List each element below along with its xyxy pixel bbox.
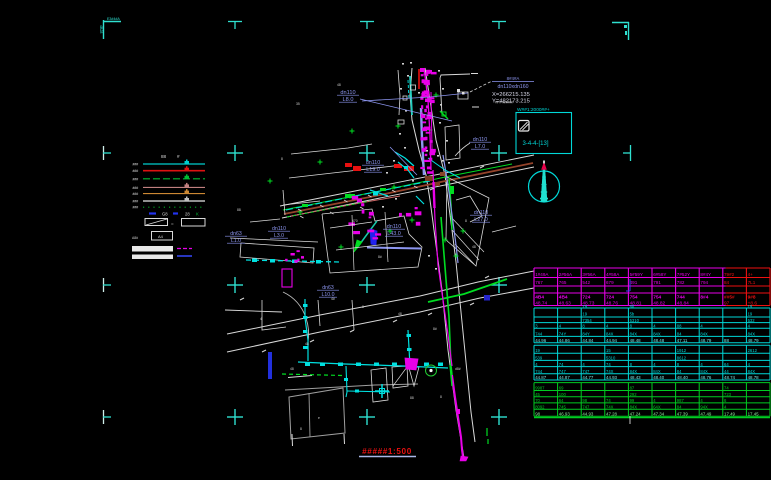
svg-text:8#4Y: 8#4Y (700, 272, 711, 277)
svg-text:7#52Y: 7#52Y (677, 272, 690, 277)
svg-text:723: 723 (724, 392, 732, 397)
svg-text:84X: 84X (606, 332, 614, 337)
svg-text:8: 8 (440, 395, 442, 399)
svg-text:48: 48 (290, 367, 294, 371)
svg-text:84X: 84X (653, 369, 661, 374)
svg-text:542: 542 (582, 280, 590, 285)
svg-text:48: 48 (398, 312, 402, 316)
svg-text:74: 74 (606, 362, 611, 367)
svg-text:dn110xdn160: dn110xdn160 (497, 84, 528, 90)
svg-text:744: 744 (535, 332, 543, 337)
svg-text:2#56A: 2#56A (559, 272, 573, 277)
svg-text:754: 754 (653, 295, 661, 301)
svg-text:48.48: 48.48 (653, 338, 665, 343)
svg-text:84X: 84X (748, 332, 756, 337)
svg-text:84X: 84X (630, 369, 638, 374)
svg-text:5b: 5b (630, 312, 635, 317)
svg-text:679: 679 (606, 280, 614, 285)
svg-text:48: 48 (472, 245, 476, 249)
svg-text:48.82: 48.82 (653, 301, 665, 307)
svg-text:84Y: 84Y (582, 332, 590, 337)
svg-text:1912: 1912 (677, 348, 687, 353)
svg-text:47.11: 47.11 (677, 338, 688, 343)
svg-text:747: 747 (559, 369, 567, 374)
svg-text:48.74: 48.74 (724, 375, 736, 380)
svg-text:A4: A4 (158, 234, 164, 239)
svg-text:###: ### (133, 192, 139, 196)
svg-text:K: K (196, 212, 199, 217)
svg-text:=: = (171, 221, 174, 226)
svg-text:84X: 84X (700, 332, 708, 337)
svg-text:84X: 84X (630, 332, 638, 337)
svg-text:94X: 94X (700, 404, 708, 409)
svg-text:84X: 84X (748, 369, 756, 374)
svg-text:987: 987 (677, 398, 685, 403)
svg-text:74: 74 (606, 398, 611, 403)
svg-text:767: 767 (535, 280, 543, 285)
svg-text:8: 8 (465, 219, 467, 223)
svg-text:8#: 8# (433, 327, 437, 331)
svg-text:###: ### (133, 169, 139, 173)
svg-text:754: 754 (630, 295, 638, 301)
svg-text:48.40: 48.40 (653, 375, 665, 380)
svg-text:70: 70 (535, 398, 540, 403)
svg-text:48.79: 48.79 (748, 338, 760, 343)
svg-text:X=266215.135: X=266215.135 (492, 92, 530, 98)
svg-text:17.45: 17.45 (748, 411, 760, 416)
svg-text:19: 19 (582, 312, 587, 317)
svg-text:44.93: 44.93 (606, 375, 618, 380)
svg-text:88: 88 (677, 324, 682, 329)
svg-text:84X: 84X (653, 332, 661, 337)
svg-text:28: 28 (185, 212, 190, 217)
svg-text:48.76: 48.76 (700, 375, 712, 380)
svg-text:8#4: 8#4 (700, 295, 708, 301)
svg-text:## # ######: ## # ###### (495, 101, 513, 105)
svg-text:19: 19 (535, 348, 540, 353)
svg-text:99: 99 (630, 398, 635, 403)
svg-text:35: 35 (296, 102, 300, 106)
svg-text:###: ### (133, 200, 139, 204)
svg-text:794: 794 (700, 280, 708, 285)
svg-text:64X: 64X (653, 404, 661, 409)
svg-text:3#56A: 3#56A (582, 272, 596, 277)
svg-text:74Y: 74Y (559, 332, 567, 337)
svg-text:###: ### (133, 163, 139, 167)
svg-text:48.79: 48.79 (700, 338, 712, 343)
svg-text:44: 44 (724, 369, 729, 374)
svg-text:1#49A: 1#49A (535, 272, 549, 277)
svg-text:8#: 8# (378, 255, 382, 259)
svg-text:6#58Y: 6#58Y (653, 272, 666, 277)
svg-text:98: 98 (582, 398, 587, 403)
svg-text:744: 744 (535, 369, 543, 374)
svg-text:744: 744 (677, 295, 685, 301)
svg-text:4+: 4+ (748, 272, 754, 277)
svg-text:7L1: 7L1 (748, 280, 756, 285)
svg-text:8#4#A: 8#4#A (507, 76, 520, 81)
svg-text:44.86: 44.86 (559, 338, 571, 343)
svg-text:791: 791 (653, 280, 661, 285)
svg-text:44.93: 44.93 (582, 411, 594, 416)
svg-text:747: 747 (582, 404, 590, 409)
svg-text:782: 782 (677, 280, 685, 285)
svg-text:44.94: 44.94 (606, 338, 618, 343)
svg-text:47.49: 47.49 (700, 411, 712, 416)
svg-text:98: 98 (535, 411, 540, 416)
svg-text:2612: 2612 (748, 348, 758, 353)
svg-text:###: ### (133, 206, 139, 210)
svg-text:74X: 74X (606, 404, 614, 409)
svg-text:4B28: 4B28 (99, 25, 103, 33)
svg-text:44.84: 44.84 (582, 338, 594, 343)
svg-text:e: e (318, 416, 320, 420)
svg-text:79#2: 79#2 (724, 272, 735, 277)
svg-text:19: 19 (748, 304, 753, 309)
svg-text:#####1:500: #####1:500 (362, 447, 412, 456)
svg-text:747: 747 (582, 369, 590, 374)
svg-text:74: 74 (559, 362, 564, 367)
svg-text:88: 88 (724, 338, 729, 343)
svg-text:9987: 9987 (535, 386, 545, 391)
svg-text:48.63: 48.63 (559, 301, 571, 307)
svg-text:46.93: 46.93 (559, 411, 571, 416)
svg-text:724: 724 (606, 295, 614, 301)
svg-text:19: 19 (748, 312, 753, 317)
svg-text:5310: 5310 (630, 318, 640, 323)
svg-text:84: 84 (724, 280, 730, 285)
svg-text:##5#: ##5# (724, 295, 735, 301)
svg-text:88: 88 (161, 154, 167, 159)
svg-text:84: 84 (677, 332, 682, 337)
svg-text:A8#: A8# (132, 236, 138, 240)
svg-text:532: 532 (748, 318, 756, 323)
svg-text:84X: 84X (630, 404, 638, 409)
svg-text:4#58A: 4#58A (606, 272, 620, 277)
svg-text:8092: 8092 (535, 404, 545, 409)
svg-text:74: 74 (724, 386, 729, 391)
svg-text:724: 724 (582, 295, 590, 301)
svg-text:###: ### (133, 186, 139, 190)
svg-text:E3#4#A: E3#4#A (107, 17, 120, 21)
svg-text:4B4: 4B4 (535, 295, 544, 301)
svg-text:8: 8 (281, 157, 283, 161)
svg-text:88: 88 (410, 396, 414, 400)
svg-text:292: 292 (630, 392, 638, 397)
svg-text:74X: 74X (606, 369, 614, 374)
svg-text:47.39: 47.39 (677, 411, 689, 416)
svg-text:8: 8 (300, 427, 302, 431)
svg-text:48.43: 48.43 (630, 375, 642, 380)
svg-text:3-4-4-[13]: 3-4-4-[13] (523, 141, 549, 147)
svg-text:84: 84 (677, 404, 682, 409)
svg-text:5310: 5310 (606, 356, 616, 361)
svg-text:5#59Y: 5#59Y (630, 272, 643, 277)
svg-text:44.87: 44.87 (535, 375, 547, 380)
svg-text:48: 48 (337, 83, 341, 87)
svg-text:100: 100 (559, 392, 567, 397)
svg-text:745: 745 (559, 404, 567, 409)
svg-text:5b: 5b (630, 304, 635, 309)
svg-text:###: ### (133, 177, 139, 181)
svg-text:44.96: 44.96 (535, 338, 547, 343)
svg-text:88: 88 (237, 208, 241, 212)
svg-text:#: # (177, 154, 180, 159)
svg-text:64: 64 (559, 398, 564, 403)
svg-text:44.87: 44.87 (559, 375, 571, 380)
svg-text:48.74: 48.74 (535, 301, 547, 307)
svg-text:48.48: 48.48 (630, 338, 642, 343)
svg-text:84: 84 (677, 369, 682, 374)
svg-text:d8#: d8# (455, 367, 461, 371)
svg-text:8612: 8612 (677, 356, 687, 361)
svg-text:47.24: 47.24 (630, 411, 642, 416)
svg-text:48.78: 48.78 (748, 375, 760, 380)
svg-text:48: 48 (305, 342, 309, 346)
svg-text:47.34: 47.34 (653, 411, 665, 416)
svg-text:9#8: 9#8 (748, 295, 756, 301)
svg-text:48.40: 48.40 (677, 375, 689, 380)
svg-text:44.77: 44.77 (582, 375, 594, 380)
svg-text:G8: G8 (162, 212, 168, 217)
svg-text:97: 97 (724, 301, 730, 307)
svg-text:539: 539 (535, 356, 543, 361)
svg-text:48.76: 48.76 (606, 301, 618, 307)
svg-text:7354: 7354 (582, 318, 592, 323)
svg-text:45: 45 (535, 392, 540, 397)
svg-text:69: 69 (559, 386, 564, 391)
svg-text:47.28: 47.28 (606, 411, 618, 416)
svg-text:17.49: 17.49 (724, 411, 736, 416)
svg-text:8: 8 (362, 305, 364, 309)
svg-text:19: 19 (582, 304, 587, 309)
svg-text:87: 87 (630, 386, 635, 391)
svg-text:64: 64 (724, 362, 729, 367)
svg-text:15: 15 (606, 348, 611, 353)
svg-text:48.84: 48.84 (677, 301, 689, 307)
svg-text:84X: 84X (700, 369, 708, 374)
svg-text:765: 765 (559, 280, 567, 285)
svg-text:470: 470 (352, 219, 358, 223)
svg-text:4B4: 4B4 (559, 295, 568, 301)
svg-text:491: 491 (630, 280, 638, 285)
